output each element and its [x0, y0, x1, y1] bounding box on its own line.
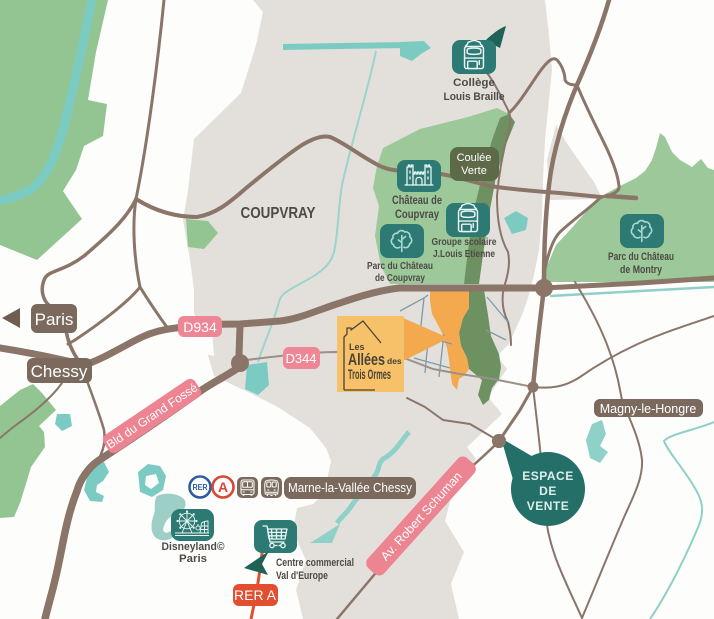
svg-text:Centre commercial: Centre commercial	[276, 557, 354, 569]
svg-text:Verte: Verte	[461, 165, 487, 177]
svg-text:Louis Braille: Louis Braille	[444, 91, 505, 103]
svg-text:des: des	[387, 356, 402, 366]
svg-text:Coulée: Coulée	[457, 152, 492, 164]
svg-text:A: A	[218, 479, 228, 495]
svg-text:Château de: Château de	[392, 195, 442, 207]
svg-text:D934: D934	[183, 319, 217, 335]
svg-text:VENTE: VENTE	[527, 499, 570, 513]
svg-text:Marne-la-Vallée Chessy: Marne-la-Vallée Chessy	[288, 481, 413, 495]
svg-text:D344: D344	[285, 351, 316, 366]
svg-text:Chessy: Chessy	[31, 362, 88, 381]
svg-text:de Coupvray: de Coupvray	[375, 272, 425, 284]
svg-text:Trois Ormes: Trois Ormes	[348, 367, 391, 382]
svg-text:Coupvray: Coupvray	[395, 209, 439, 221]
svg-text:Parc du Château: Parc du Château	[608, 251, 674, 263]
svg-text:RER: RER	[193, 483, 208, 492]
svg-text:Disneyland©: Disneyland©	[162, 541, 225, 553]
svg-text:Paris: Paris	[179, 553, 207, 565]
svg-text:Magny-le-Hongre: Magny-le-Hongre	[600, 402, 697, 416]
svg-text:ESPACE: ESPACE	[522, 469, 573, 483]
svg-text:J.Louis Etienne: J.Louis Etienne	[433, 248, 495, 260]
svg-text:COUPVRAY: COUPVRAY	[241, 205, 316, 222]
svg-text:Groupe scolaire: Groupe scolaire	[432, 236, 497, 248]
svg-text:de Montry: de Montry	[620, 264, 663, 276]
svg-text:Collège: Collège	[453, 77, 495, 89]
svg-text:RER A: RER A	[234, 587, 277, 603]
svg-text:Parc du Château: Parc du Château	[367, 260, 433, 272]
svg-text:DE: DE	[539, 484, 557, 498]
svg-text:Val d'Europe: Val d'Europe	[276, 570, 328, 582]
svg-text:Paris: Paris	[35, 310, 74, 329]
